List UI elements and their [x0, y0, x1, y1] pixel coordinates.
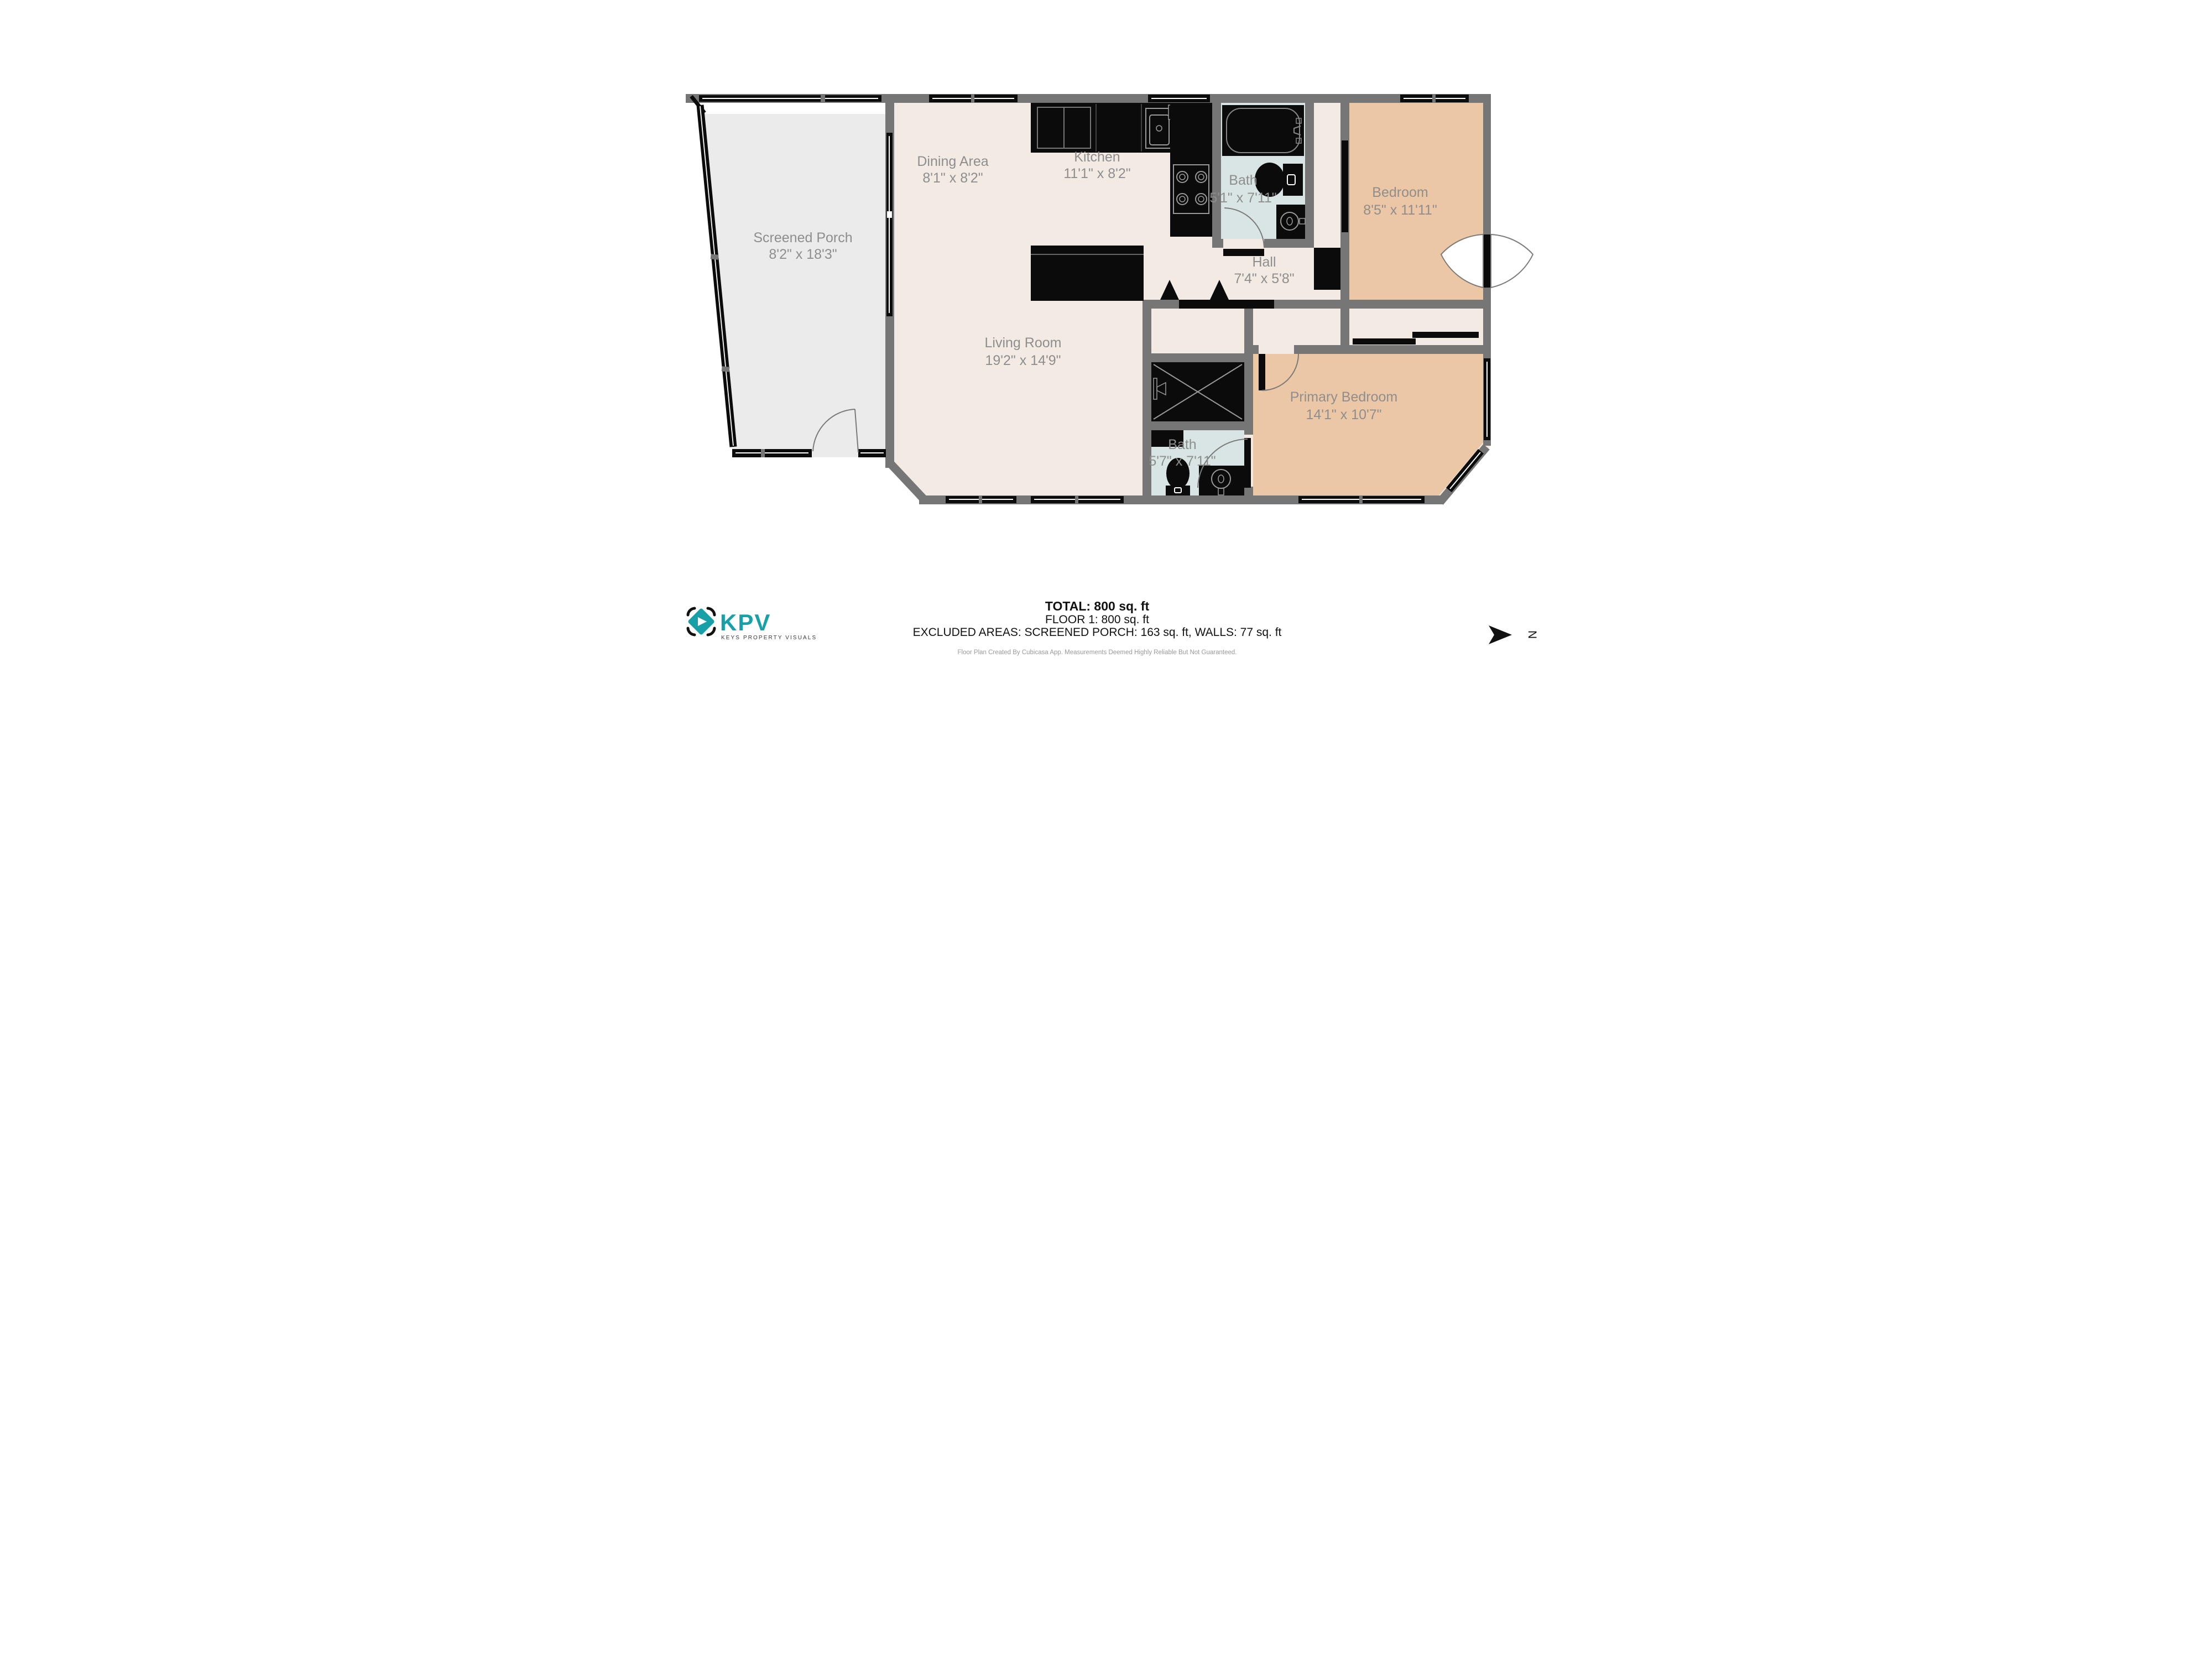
label-dining-area: Dining Area: [917, 154, 988, 169]
bedroom-window-mullion: [1432, 95, 1436, 102]
floor-plan-page: Screened Porch 8'2" x 18'3" Dining Area …: [664, 0, 1548, 664]
porch-top-window-mullion: [821, 95, 825, 102]
bedroom-bottom-wall: [1340, 300, 1491, 309]
living-window-2-mullion: [1075, 496, 1078, 503]
porch-bottom-mullion: [761, 449, 765, 457]
dims-hall: 7'4" x 5'8": [1234, 271, 1294, 286]
dims-kitchen: 11'1" x 8'2": [1063, 166, 1130, 181]
shower-bath2-wall: [1151, 421, 1244, 430]
living-window-1-mullion: [979, 496, 982, 503]
label-bedroom: Bedroom: [1372, 185, 1428, 200]
bath1-bottom-wall-right: [1264, 239, 1314, 248]
logo-text: KPV: [720, 609, 771, 635]
drone-icon: [688, 608, 714, 635]
sink-icon-bath2: [1199, 466, 1244, 495]
floor-plan-svg: Screened Porch 8'2" x 18'3" Dining Area …: [664, 0, 1548, 664]
shower-top-wall: [1142, 353, 1253, 362]
label-primary-bedroom: Primary Bedroom: [1290, 389, 1398, 405]
dims-primary-bedroom: 14'1" x 10'7": [1306, 407, 1381, 422]
dims-dining-area: 8'1" x 8'2": [922, 170, 983, 186]
dims-bath1: 5'1" x 7'11": [1209, 190, 1276, 206]
label-bath2: Bath: [1168, 437, 1196, 452]
bathtub-icon: [1222, 105, 1304, 156]
primary-top-wall-right: [1294, 345, 1491, 354]
bath2-door-leaf: [1244, 438, 1251, 488]
porch-left-mullion-2: [722, 366, 730, 372]
linen-closet: [1314, 248, 1340, 290]
floor-area-text: FLOOR 1: 800 sq. ft: [1045, 613, 1149, 626]
primary-bottom-window-mullion: [1359, 496, 1363, 503]
kpv-logo: KPV KEYS PROPERTY VISUALS: [688, 608, 817, 641]
bedroom-door-fan-out: [1491, 234, 1533, 288]
total-area-text: TOTAL: 800 sq. ft: [1045, 599, 1150, 613]
shower-column-right-wall-upper: [1244, 309, 1253, 435]
north-arrow-icon: [1489, 625, 1512, 644]
closet-bypass-door-1: [1353, 338, 1416, 345]
dims-living-room: 19'2" x 14'9": [985, 353, 1061, 368]
label-living-room: Living Room: [985, 335, 1062, 351]
label-bath1: Bath: [1229, 173, 1257, 188]
primary-door-leaf: [1259, 354, 1265, 390]
bath1-right-wall: [1305, 103, 1314, 248]
dims-bath2: 5'7" x 7'11": [1149, 453, 1215, 469]
porch-slider-handle: [887, 211, 892, 218]
porch-door-sill: [812, 449, 858, 457]
dining-window-mullion: [971, 95, 974, 102]
summary-block: TOTAL: 800 sq. ft FLOOR 1: 800 sq. ft EX…: [913, 599, 1282, 656]
right-wall-upper: [1483, 103, 1491, 234]
hall-closet-header: [1179, 300, 1274, 309]
bedroom-door-leaf: [1483, 234, 1491, 288]
bedroom-slider-door: [1342, 140, 1348, 232]
sink-icon-bath1: [1276, 205, 1305, 239]
primary-bedroom-floor: [1253, 354, 1483, 495]
dims-screened-porch: 8'2" x 18'3": [769, 247, 837, 262]
logo-subtext: KEYS PROPERTY VISUALS: [721, 635, 817, 641]
bath1-bottom-wall-left: [1221, 239, 1223, 248]
porch-left-mullion-1: [711, 254, 719, 259]
label-kitchen: Kitchen: [1074, 149, 1120, 165]
primary-top-wall-left: [1253, 345, 1259, 354]
label-hall: Hall: [1252, 254, 1276, 270]
excluded-areas-text: EXCLUDED AREAS: SCREENED PORCH: 163 sq. …: [913, 626, 1282, 639]
north-label: N: [1526, 630, 1538, 639]
dims-bedroom: 8'5" x 11'11": [1363, 202, 1437, 218]
closet-bypass-door-2: [1412, 332, 1479, 338]
label-screened-porch: Screened Porch: [753, 230, 852, 246]
kitchen-right-cabinets: [1170, 103, 1212, 237]
north-arrow: N: [1489, 625, 1538, 644]
kitchen-bath-wall: [1212, 103, 1221, 248]
shower-column-left-wall: [1142, 309, 1151, 504]
shower-column-right-wall-lower: [1244, 487, 1253, 504]
disclaimer-text: Floor Plan Created By Cubicasa App. Meas…: [958, 649, 1237, 656]
